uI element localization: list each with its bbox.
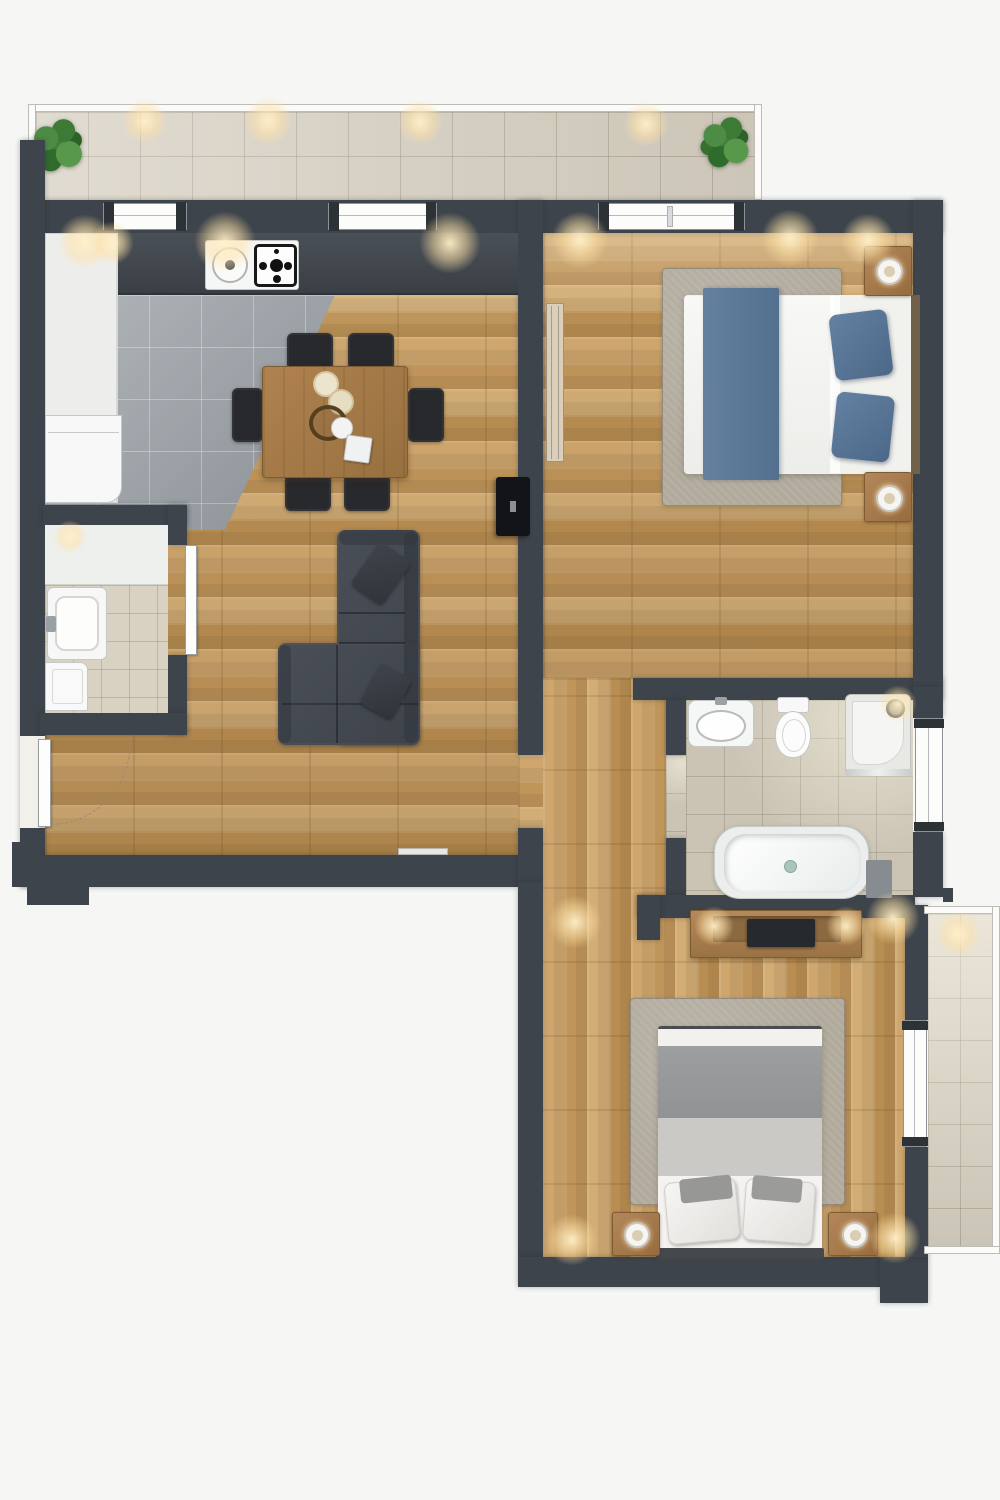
ceiling-light-glow-icon (694, 906, 734, 946)
ceiling-light-glow-icon (53, 520, 87, 554)
ceiling-light-glow-icon (397, 99, 443, 145)
ceiling-light-glow-icon (551, 211, 609, 269)
ceiling-lights-layer (0, 0, 1000, 1500)
ceiling-light-glow-icon (57, 214, 113, 270)
ceiling-light-glow-icon (623, 101, 669, 147)
ceiling-light-glow-icon (243, 96, 293, 146)
ceiling-light-glow-icon (548, 895, 602, 949)
ceiling-light-glow-icon (869, 1212, 921, 1264)
ceiling-light-glow-icon (826, 906, 866, 946)
ceiling-light-glow-icon (879, 685, 917, 723)
ceiling-light-glow-icon (90, 221, 134, 265)
ceiling-light-glow-icon (841, 213, 895, 267)
ceiling-light-glow-icon (419, 212, 481, 274)
ceiling-light-glow-icon (866, 891, 920, 945)
ceiling-light-glow-icon (546, 1214, 598, 1266)
ceiling-light-glow-icon (935, 911, 981, 957)
ceiling-light-glow-icon (761, 209, 819, 267)
ceiling-light-glow-icon (194, 211, 256, 273)
floor-plan (0, 0, 1000, 1500)
ceiling-light-glow-icon (122, 98, 168, 144)
